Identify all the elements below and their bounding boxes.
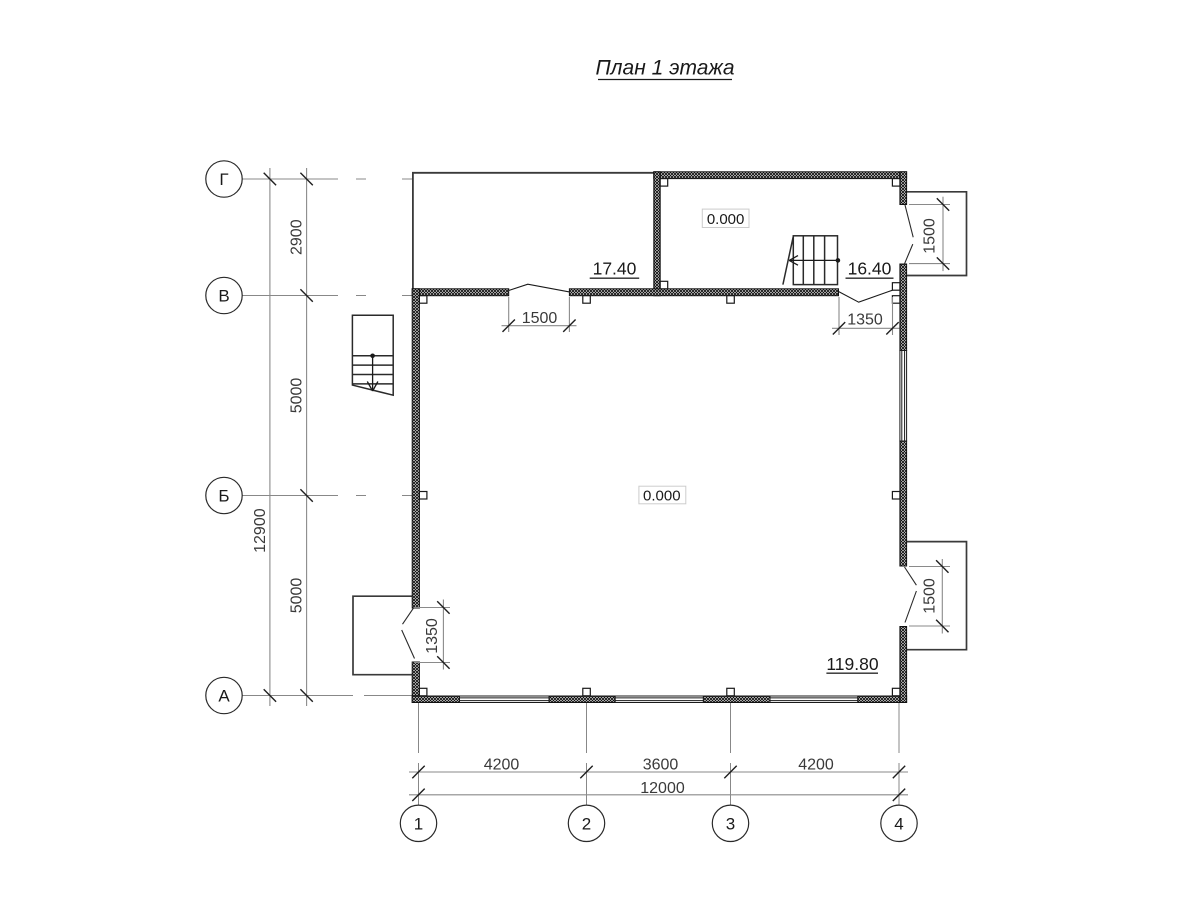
svg-text:1500: 1500: [522, 310, 558, 327]
svg-text:4200: 4200: [798, 757, 834, 774]
svg-text:3600: 3600: [643, 757, 679, 774]
svg-text:5000: 5000: [288, 378, 305, 414]
svg-text:119.80: 119.80: [826, 654, 878, 674]
svg-text:1500: 1500: [922, 218, 939, 254]
svg-text:0.000: 0.000: [643, 488, 681, 505]
svg-text:1350: 1350: [424, 618, 441, 654]
svg-text:0.000: 0.000: [707, 211, 745, 228]
svg-text:17.40: 17.40: [593, 259, 637, 279]
svg-text:1350: 1350: [847, 312, 883, 329]
svg-text:1: 1: [414, 814, 423, 833]
svg-text:12000: 12000: [640, 780, 685, 797]
svg-text:12900: 12900: [252, 508, 269, 553]
svg-text:4200: 4200: [484, 757, 520, 774]
svg-text:3: 3: [726, 814, 735, 833]
svg-text:2: 2: [582, 814, 591, 833]
svg-text:2900: 2900: [288, 219, 305, 255]
svg-text:А: А: [218, 687, 230, 706]
svg-text:1500: 1500: [922, 578, 939, 614]
svg-text:Г: Г: [219, 170, 228, 189]
svg-text:4: 4: [894, 814, 903, 833]
svg-text:Б: Б: [218, 487, 229, 506]
svg-text:План 1 этажа: План 1 этажа: [595, 57, 734, 80]
svg-text:В: В: [218, 287, 229, 306]
svg-text:16.40: 16.40: [848, 259, 892, 279]
svg-text:5000: 5000: [288, 578, 305, 614]
